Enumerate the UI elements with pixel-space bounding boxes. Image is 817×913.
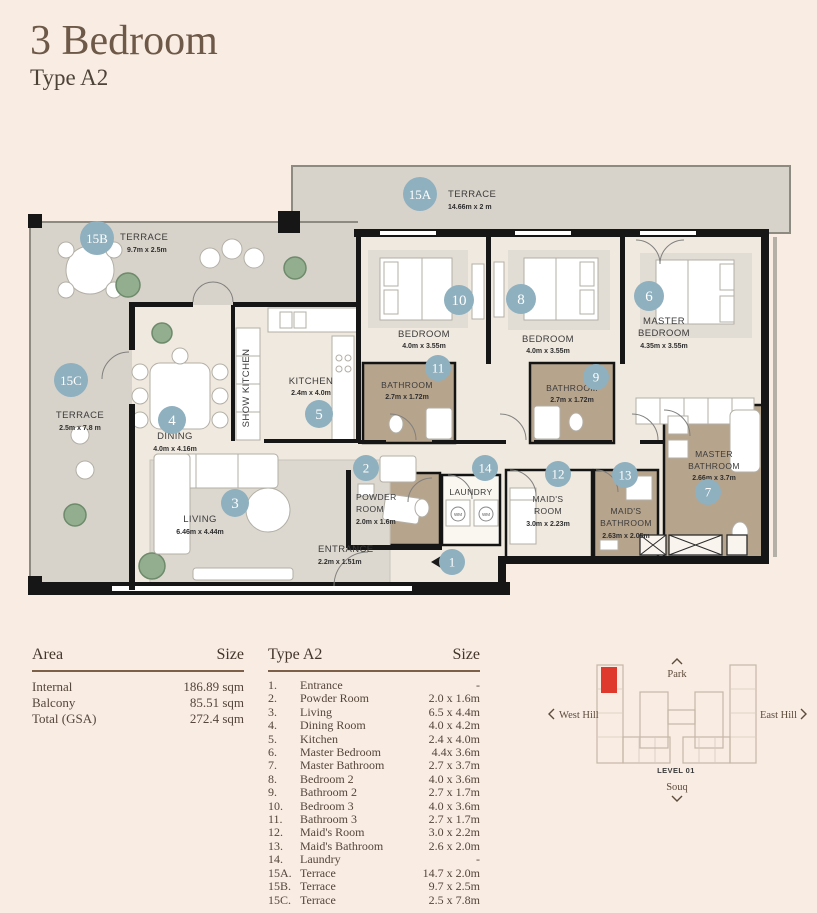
svg-text:2.7m x 1.72m: 2.7m x 1.72m (550, 397, 594, 404)
show-kitchen-label: SHOW KITCHEN (241, 349, 252, 428)
svg-text:4.0m x 3.55m: 4.0m x 3.55m (402, 343, 446, 350)
svg-text:15C: 15C (60, 373, 82, 388)
table-row: Total (GSA)272.4 sqm (32, 711, 244, 727)
table-row: 1.Entrance- (268, 679, 480, 692)
table-row: 13.Maid's Bathroom2.6 x 2.0m (268, 840, 480, 853)
type-table-header: Type A2 Size (268, 646, 480, 672)
table-row: Balcony85.51 sqm (32, 695, 244, 711)
svg-text:2.7m x 1.72m: 2.7m x 1.72m (385, 394, 429, 401)
terrace-15c-label: TERRACE (56, 410, 104, 421)
master-bathroom-label: MASTER (695, 449, 733, 459)
table-row: 5.Kitchen2.4 x 4.0m (268, 733, 480, 746)
highlighted-unit (601, 667, 617, 693)
chevron-left-icon (549, 709, 554, 719)
badge-master-bathroom: 7 (695, 479, 721, 505)
svg-text:2.63m x 2.05m: 2.63m x 2.05m (602, 533, 649, 540)
svg-text:2.2m x 1.51m: 2.2m x 1.51m (318, 559, 362, 566)
badge-powder: 2 (353, 455, 379, 481)
badge-maids-room: 12 (545, 461, 571, 487)
area-table: Area Size Internal186.89 sqm Balcony85.5… (32, 646, 244, 727)
svg-text:9.7m x 2.5m: 9.7m x 2.5m (127, 247, 167, 254)
living-label: LIVING (183, 514, 217, 525)
svg-text:6: 6 (645, 289, 653, 305)
svg-text:15B: 15B (86, 231, 108, 246)
svg-text:ROOM: ROOM (356, 504, 384, 514)
area-col-header: Area (32, 646, 63, 664)
powder-room-label: POWDER (356, 492, 397, 502)
terrace-15b-label: TERRACE (120, 232, 168, 243)
table-row: 9.Bathroom 22.7 x 1.7m (268, 786, 480, 799)
east-hill-label: East Hill (760, 710, 797, 721)
svg-text:2: 2 (363, 461, 370, 476)
kitchen-label: KITCHEN (289, 376, 334, 387)
chevron-right-icon (801, 709, 806, 719)
svg-text:12: 12 (552, 467, 565, 482)
table-row: 4.Dining Room4.0 x 4.2m (268, 719, 480, 732)
badge-terrace-15c: 15C (54, 363, 88, 397)
shaft-boxes (640, 535, 747, 555)
badge-bathroom3: 11 (425, 355, 451, 381)
svg-text:5: 5 (315, 407, 323, 423)
svg-text:3.0m x 2.23m: 3.0m x 2.23m (526, 521, 570, 528)
area-table-header: Area Size (32, 646, 244, 672)
svg-text:10: 10 (452, 293, 467, 309)
location-map: Park West Hill East Hill LEVEL 01 Souq (545, 655, 810, 810)
svg-text:4: 4 (168, 413, 176, 429)
svg-text:BATHROOM: BATHROOM (688, 461, 740, 471)
table-row: 14.Laundry- (268, 853, 480, 866)
badge-bedroom3: 10 (444, 285, 474, 315)
svg-text:13: 13 (619, 468, 632, 483)
svg-text:9: 9 (593, 370, 600, 385)
badge-bathroom2: 9 (583, 364, 609, 390)
svg-text:15A: 15A (409, 187, 432, 202)
badge-living: 3 (221, 489, 249, 517)
entrance-label: ENTRANCE (318, 544, 373, 555)
svg-text:11: 11 (432, 361, 445, 376)
svg-text:2.0m x 1.6m: 2.0m x 1.6m (356, 519, 396, 526)
table-row: 7.Master Bathroom2.7 x 3.7m (268, 759, 480, 772)
level-label: LEVEL 01 (657, 766, 695, 775)
svg-text:4.0m x 3.55m: 4.0m x 3.55m (526, 348, 570, 355)
badge-terrace-15a: 15A (403, 177, 437, 211)
table-row: 12.Maid's Room3.0 x 2.2m (268, 826, 480, 839)
wm-label: WM (454, 512, 462, 517)
svg-text:2.5m x 7.8 m: 2.5m x 7.8 m (59, 425, 101, 432)
terrace-15a-label: TERRACE (448, 189, 496, 200)
maids-room-label: MAID'S (533, 494, 564, 504)
bedroom3-label: BEDROOM (398, 329, 450, 340)
svg-text:14: 14 (479, 461, 493, 476)
svg-text:7: 7 (705, 485, 712, 500)
page-title: 3 Bedroom (30, 18, 218, 64)
svg-text:BATHROOM: BATHROOM (600, 518, 652, 528)
table-row: 11.Bathroom 32.7 x 1.7m (268, 813, 480, 826)
svg-text:6.46m x 4.44m: 6.46m x 4.44m (176, 529, 223, 536)
badge-master-bedroom: 6 (634, 281, 664, 311)
bathroom3-label: BATHROOM (381, 380, 433, 390)
badge-terrace-15b: 15B (80, 221, 114, 255)
type-col-header: Type A2 (268, 646, 322, 664)
west-hill-label: West Hill (559, 710, 599, 721)
floorplan-page: 3 Bedroom Type A2 (0, 0, 817, 913)
svg-text:8: 8 (517, 292, 525, 308)
page-subtitle: Type A2 (30, 64, 218, 92)
terrace-15a-area (292, 166, 790, 233)
laundry-label: LAUNDRY (449, 487, 492, 497)
badge-maids-bathroom: 13 (612, 462, 638, 488)
badge-kitchen: 5 (305, 400, 333, 428)
badge-laundry: 14 (472, 455, 498, 481)
badge-dining: 4 (158, 406, 186, 434)
wm-label: WM (482, 512, 490, 517)
svg-text:1: 1 (449, 555, 456, 570)
svg-text:2.4m x 4.0m: 2.4m x 4.0m (291, 390, 331, 397)
badge-bedroom2: 8 (506, 284, 536, 314)
chevron-up-icon (672, 659, 682, 664)
svg-text:BEDROOM: BEDROOM (638, 328, 690, 339)
size-col-header: Size (216, 646, 244, 664)
maids-bathroom-label: MAID'S (611, 506, 642, 516)
svg-text:ROOM: ROOM (534, 506, 562, 516)
table-row: 15C.Terrace2.5 x 7.8m (268, 894, 480, 907)
chevron-down-icon (672, 796, 682, 801)
floor-plan: WM WM (28, 158, 792, 625)
table-row: 2.Powder Room2.0 x 1.6m (268, 692, 480, 705)
table-row: 3.Living6.5 x 4.4m (268, 706, 480, 719)
svg-text:4.35m x 3.55m: 4.35m x 3.55m (640, 343, 687, 350)
master-bedroom-label: MASTER (643, 316, 685, 327)
park-label: Park (667, 669, 687, 680)
size-col-header: Size (452, 646, 480, 664)
svg-text:4.0m x 4.16m: 4.0m x 4.16m (153, 446, 197, 453)
bedroom2-label: BEDROOM (522, 334, 574, 345)
table-row: 6.Master Bedroom4.4x 3.6m (268, 746, 480, 759)
table-row: 15A.Terrace14.7 x 2.0m (268, 867, 480, 880)
table-row: 8.Bedroom 24.0 x 3.6m (268, 773, 480, 786)
souq-label: Souq (666, 782, 688, 793)
svg-text:3: 3 (231, 496, 239, 512)
table-row: Internal186.89 sqm (32, 679, 244, 695)
title-block: 3 Bedroom Type A2 (30, 18, 218, 92)
table-row: 10.Bedroom 34.0 x 3.6m (268, 800, 480, 813)
svg-text:14.66m x 2 m: 14.66m x 2 m (448, 204, 492, 211)
table-row: 15B.Terrace9.7 x 2.5m (268, 880, 480, 893)
type-table: Type A2 Size 1.Entrance- 2.Powder Room2.… (268, 646, 480, 907)
